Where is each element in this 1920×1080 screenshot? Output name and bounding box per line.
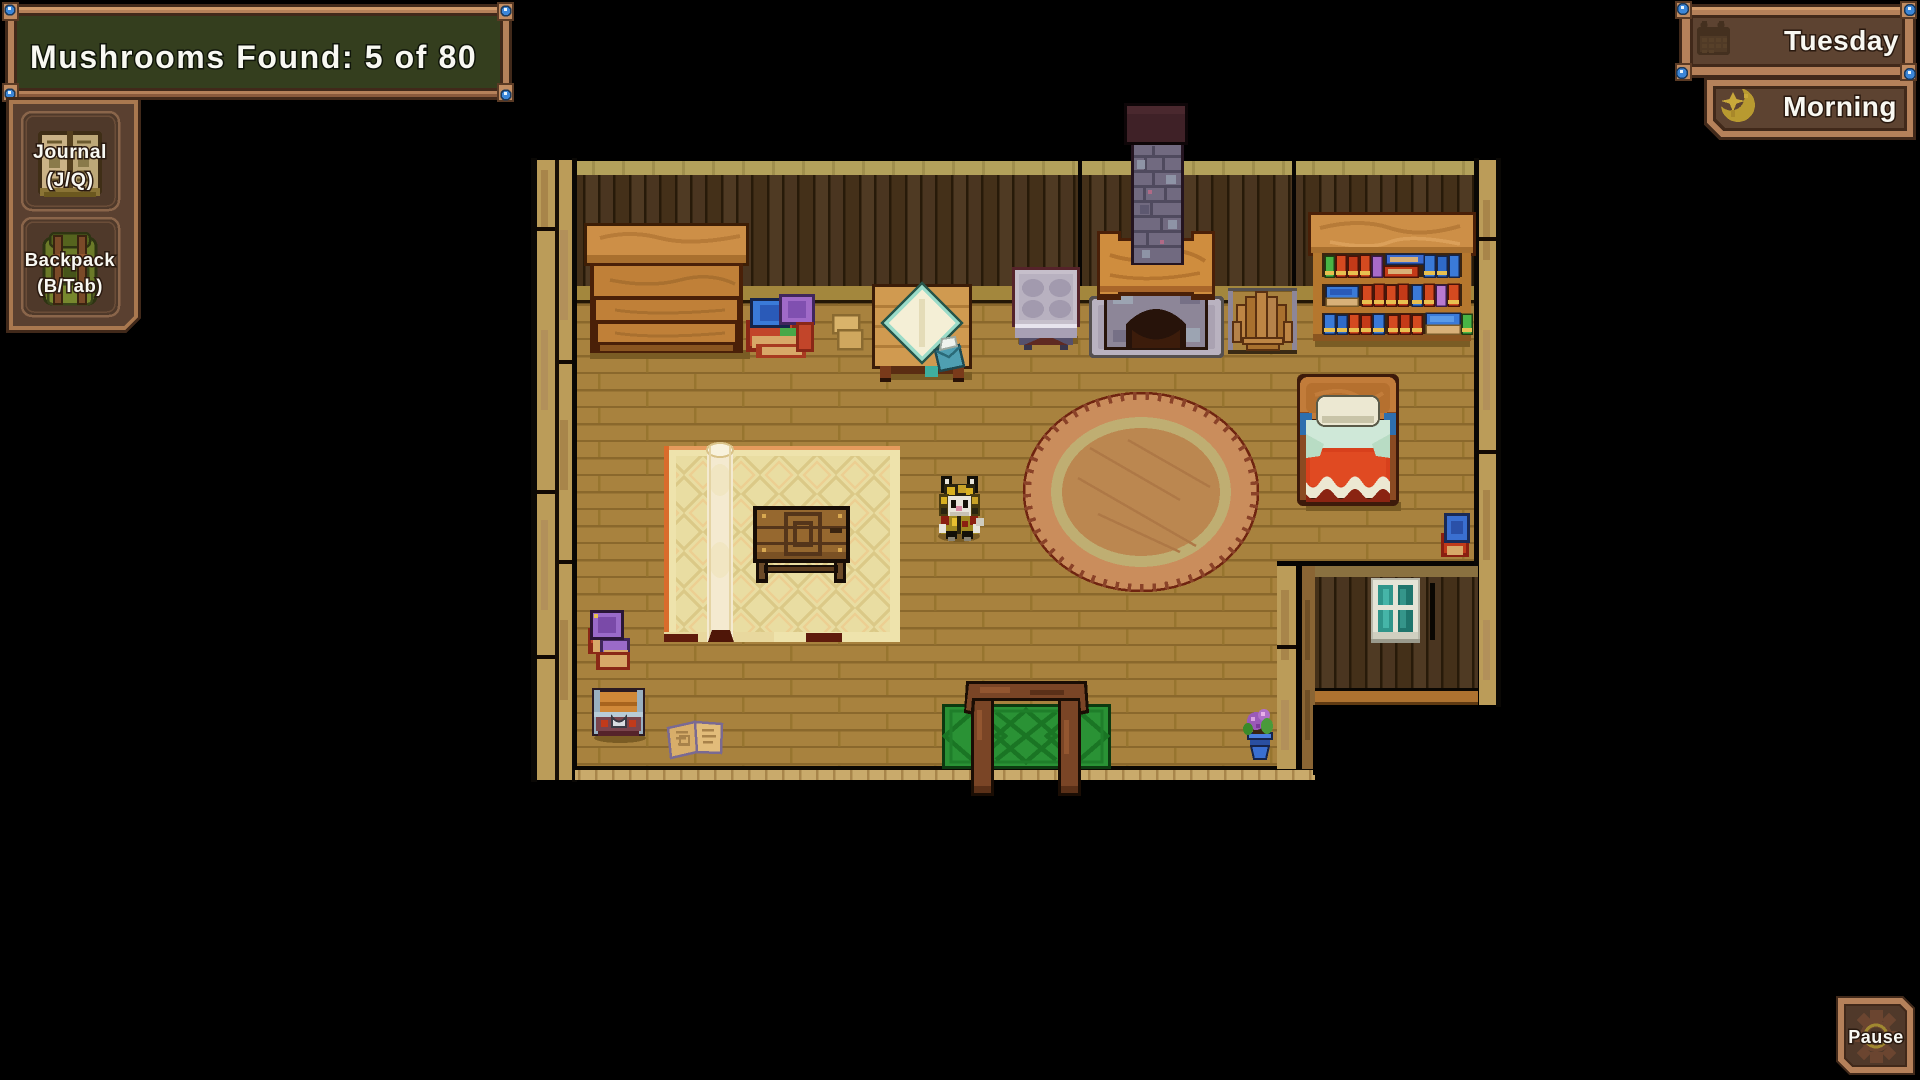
svg-text:Tuesday: Tuesday	[1784, 25, 1899, 56]
svg-text:Journal: Journal	[33, 141, 107, 163]
svg-text:Pause: Pause	[1848, 1027, 1904, 1047]
svg-text:Morning: Morning	[1783, 91, 1897, 122]
svg-text:Mushrooms Found: 5 of 80: Mushrooms Found: 5 of 80	[30, 39, 477, 75]
svg-text:(B/Tab): (B/Tab)	[37, 275, 103, 296]
svg-text:Backpack: Backpack	[25, 249, 116, 270]
svg-text:(J/Q): (J/Q)	[47, 169, 94, 191]
